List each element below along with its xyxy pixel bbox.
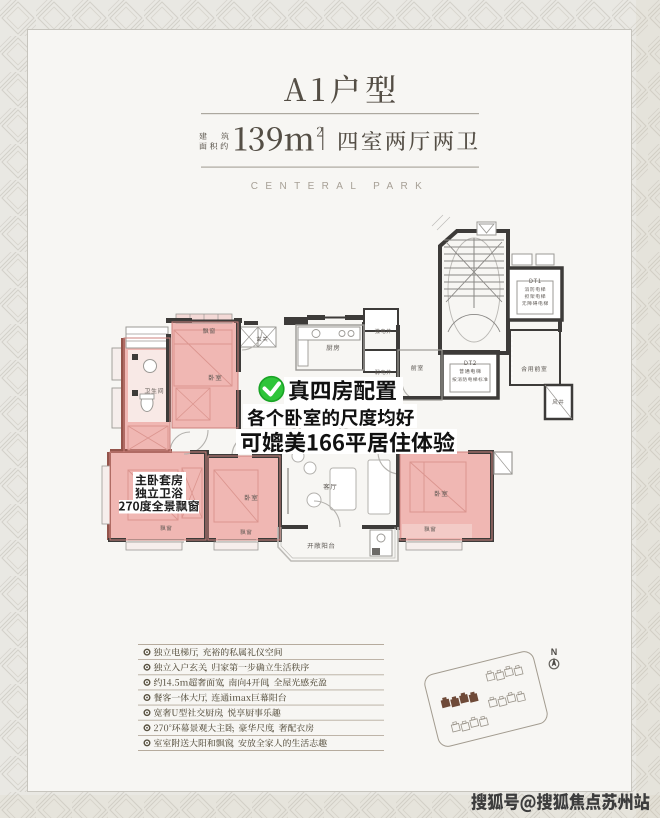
svg-text:N: N	[551, 647, 558, 657]
svg-text:CENTERAL PARK: CENTERAL PARK	[251, 181, 429, 192]
